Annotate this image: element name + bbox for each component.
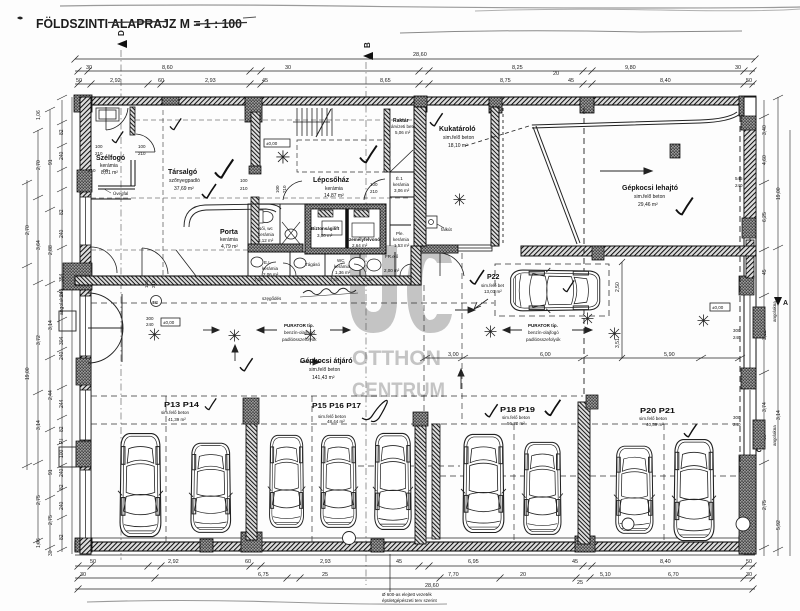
svg-text:sim.felő beton: sim.felő beton bbox=[634, 194, 665, 200]
svg-text:benzín-olajfogó: benzín-olajfogó bbox=[528, 330, 559, 335]
svg-text:2,75: 2,75 bbox=[48, 515, 54, 525]
svg-text:B: B bbox=[363, 42, 372, 48]
svg-text:falkút: falkút bbox=[441, 227, 453, 232]
svg-text:30: 30 bbox=[735, 65, 741, 71]
svg-text:82: 82 bbox=[59, 426, 65, 432]
svg-text:TG: TG bbox=[152, 300, 159, 305]
svg-text:kerámia: kerámia bbox=[258, 232, 275, 237]
svg-text:8,40: 8,40 bbox=[660, 559, 671, 565]
svg-text:±0,00: ±0,00 bbox=[266, 141, 278, 146]
svg-text:angolakna: angolakna bbox=[772, 301, 777, 322]
svg-text:2,92: 2,92 bbox=[168, 559, 179, 565]
svg-text:82: 82 bbox=[59, 484, 65, 490]
svg-text:épületgépészeti terv szerint: épületgépészeti terv szerint bbox=[382, 598, 438, 603]
svg-text:41,39 m²: 41,39 m² bbox=[168, 417, 186, 422]
svg-text:padlóösszefolyók: padlóösszefolyók bbox=[282, 337, 317, 342]
svg-text:1,36 m²: 1,36 m² bbox=[335, 270, 351, 275]
svg-text:240: 240 bbox=[59, 229, 65, 238]
svg-text:angolakna: angolakna bbox=[772, 425, 777, 446]
svg-text:45: 45 bbox=[568, 78, 574, 84]
svg-text:100: 100 bbox=[138, 144, 146, 149]
svg-text:50: 50 bbox=[90, 559, 96, 565]
svg-text:3,51: 3,51 bbox=[615, 338, 621, 348]
svg-text:Biztonságilift: Biztonságilift bbox=[311, 226, 340, 231]
svg-text:A: A bbox=[783, 300, 788, 307]
svg-text:É.1: É.1 bbox=[396, 175, 403, 181]
svg-text:3,72: 3,72 bbox=[36, 335, 42, 345]
svg-text:240: 240 bbox=[59, 151, 65, 160]
svg-text:28,60: 28,60 bbox=[413, 52, 427, 58]
svg-text:padlóösszefolyók: padlóösszefolyók bbox=[526, 337, 561, 342]
svg-text:20: 20 bbox=[553, 71, 559, 77]
svg-text:82: 82 bbox=[59, 534, 65, 540]
svg-text:P.I: P.I bbox=[59, 439, 65, 444]
svg-text:4,79 m²: 4,79 m² bbox=[221, 244, 238, 250]
svg-text:3,00: 3,00 bbox=[448, 352, 459, 358]
svg-text:Női, wc: Női, wc bbox=[258, 226, 274, 231]
svg-text:Kukatároló: Kukatároló bbox=[439, 126, 476, 133]
svg-text:kerámia: kerámia bbox=[393, 182, 410, 187]
svg-text:3,14: 3,14 bbox=[36, 420, 42, 430]
svg-text:141,43 m²: 141,43 m² bbox=[312, 375, 335, 381]
svg-text:1,06: 1,06 bbox=[36, 538, 42, 548]
svg-text:Ø 600-as elejtett vezeték: Ø 600-as elejtett vezeték bbox=[382, 592, 433, 597]
svg-text:91: 91 bbox=[48, 159, 54, 165]
svg-text:37,69 m²: 37,69 m² bbox=[174, 186, 194, 192]
svg-text:30: 30 bbox=[746, 572, 752, 578]
svg-text:100: 100 bbox=[95, 144, 103, 149]
svg-text:210: 210 bbox=[370, 189, 378, 194]
svg-text:Ple.: Ple. bbox=[396, 231, 404, 236]
svg-text:19,00: 19,00 bbox=[25, 367, 31, 380]
svg-text:±0,00: ±0,00 bbox=[712, 305, 724, 310]
svg-text:8,60: 8,60 bbox=[162, 65, 173, 71]
svg-text:20: 20 bbox=[520, 572, 526, 578]
svg-text:kerámia: kerámia bbox=[325, 186, 343, 192]
svg-text:2,75: 2,75 bbox=[762, 500, 768, 510]
svg-text:3,06 m²: 3,06 m² bbox=[394, 188, 410, 193]
svg-text:2,88: 2,88 bbox=[48, 245, 54, 255]
svg-text:82: 82 bbox=[59, 209, 65, 215]
svg-text:40,39 m²: 40,39 m² bbox=[646, 422, 664, 427]
svg-text:3,12 m²: 3,12 m² bbox=[258, 238, 274, 243]
svg-text:5,92: 5,92 bbox=[776, 520, 782, 530]
svg-text:3,00 m²: 3,00 m² bbox=[317, 233, 333, 238]
svg-text:30: 30 bbox=[86, 65, 92, 71]
svg-text:100: 100 bbox=[240, 178, 248, 183]
svg-text:60: 60 bbox=[158, 78, 164, 84]
svg-text:5,10: 5,10 bbox=[600, 572, 611, 578]
svg-text:6,25: 6,25 bbox=[762, 212, 768, 222]
svg-text:Gépkocsi lehajtó: Gépkocsi lehajtó bbox=[622, 185, 678, 192]
svg-text:2,06 m²: 2,06 m² bbox=[263, 272, 279, 277]
svg-text:14,87 m²: 14,87 m² bbox=[324, 193, 344, 199]
svg-text:210: 210 bbox=[240, 186, 248, 191]
svg-text:PURATOR tip.: PURATOR tip. bbox=[528, 323, 558, 328]
svg-text:2,50: 2,50 bbox=[615, 282, 621, 292]
svg-text:91: 91 bbox=[48, 469, 54, 475]
svg-text:P13 P14: P13 P14 bbox=[164, 402, 199, 409]
svg-text:8,01 m²: 8,01 m² bbox=[101, 170, 118, 176]
svg-text:sim.felő bet: sim.felő bet bbox=[481, 283, 505, 288]
svg-text:P20 P21: P20 P21 bbox=[640, 408, 675, 415]
svg-text:szęgődés: szęgődés bbox=[262, 296, 282, 301]
svg-text:WC: WC bbox=[337, 258, 345, 263]
svg-text:kerámia: kerámia bbox=[100, 163, 118, 169]
svg-text:2,10: 2,10 bbox=[254, 277, 263, 282]
svg-text:sim.felő beton: sim.felő beton bbox=[443, 135, 474, 141]
svg-text:3,14: 3,14 bbox=[48, 320, 54, 330]
svg-text:D: D bbox=[117, 30, 126, 36]
svg-text:56,70 m²: 56,70 m² bbox=[507, 421, 525, 426]
svg-text:240: 240 bbox=[59, 468, 65, 477]
svg-text:50: 50 bbox=[746, 559, 752, 565]
svg-text:8,25: 8,25 bbox=[512, 65, 523, 71]
svg-text:45: 45 bbox=[762, 269, 768, 275]
svg-text:sim.felő beton: sim.felő beton bbox=[161, 410, 190, 415]
svg-text:6,00: 6,00 bbox=[540, 352, 551, 358]
svg-text:545: 545 bbox=[735, 176, 743, 181]
svg-text:P15 P16 P17: P15 P16 P17 bbox=[312, 403, 361, 410]
svg-text:82: 82 bbox=[59, 129, 65, 135]
svg-text:2,44: 2,44 bbox=[48, 390, 54, 400]
svg-text:1,53 m²: 1,53 m² bbox=[394, 243, 410, 248]
svg-text:7,70: 7,70 bbox=[448, 572, 459, 578]
svg-text:kerámia: kerámia bbox=[393, 237, 410, 242]
svg-text:8,40: 8,40 bbox=[660, 78, 671, 84]
svg-text:30: 30 bbox=[80, 572, 86, 578]
svg-text:240: 240 bbox=[146, 322, 154, 327]
svg-text:3,74: 3,74 bbox=[762, 402, 768, 412]
svg-text:100: 100 bbox=[275, 185, 280, 193]
svg-text:304: 304 bbox=[59, 336, 65, 345]
svg-text:2,10: 2,10 bbox=[296, 277, 305, 282]
svg-text:angolakna: angolakna bbox=[59, 292, 65, 315]
svg-text:48,44 m²: 48,44 m² bbox=[327, 419, 345, 424]
svg-text:FR.elő: FR.elő bbox=[385, 254, 399, 259]
svg-text:OTTHON: OTTHON bbox=[352, 347, 441, 370]
svg-text:Szélfogó: Szélfogó bbox=[96, 155, 125, 162]
svg-text:sim.felő beton: sim.felő beton bbox=[502, 415, 531, 420]
svg-text:2,92: 2,92 bbox=[110, 78, 121, 84]
svg-text:30: 30 bbox=[285, 65, 291, 71]
svg-text:210: 210 bbox=[88, 168, 96, 173]
svg-text:30: 30 bbox=[48, 550, 54, 556]
svg-text:2,10: 2,10 bbox=[363, 277, 372, 282]
svg-text:240: 240 bbox=[735, 183, 743, 188]
svg-text:240: 240 bbox=[59, 351, 65, 360]
svg-text:8,75: 8,75 bbox=[500, 78, 511, 84]
svg-text:2,75: 2,75 bbox=[36, 495, 42, 505]
svg-text:240: 240 bbox=[59, 501, 65, 510]
svg-text:Gépkocsi átjáró: Gépkocsi átjáró bbox=[300, 358, 353, 365]
svg-text:50: 50 bbox=[746, 78, 752, 84]
svg-text:3,14: 3,14 bbox=[776, 410, 782, 420]
svg-text:Üvegfal: Üvegfal bbox=[113, 190, 128, 196]
svg-text:5,90: 5,90 bbox=[664, 352, 675, 358]
svg-text:6,70: 6,70 bbox=[668, 572, 679, 578]
svg-text:3,40: 3,40 bbox=[762, 125, 768, 135]
svg-text:25: 25 bbox=[577, 580, 583, 586]
svg-text:sim.felő beton: sim.felő beton bbox=[309, 367, 340, 373]
svg-text:210: 210 bbox=[151, 280, 156, 288]
svg-text:2,70: 2,70 bbox=[36, 160, 42, 170]
svg-text:28,60: 28,60 bbox=[425, 583, 439, 589]
svg-text:P22: P22 bbox=[487, 274, 500, 281]
svg-text:1,06: 1,06 bbox=[36, 110, 42, 120]
svg-text:300: 300 bbox=[146, 316, 154, 321]
svg-text:szőnyegpadló: szőnyegpadló bbox=[169, 178, 200, 184]
svg-text:60: 60 bbox=[245, 559, 251, 565]
svg-text:9,80: 9,80 bbox=[625, 65, 636, 71]
svg-text:13,01 m²: 13,01 m² bbox=[484, 289, 502, 294]
svg-text:19,00: 19,00 bbox=[776, 187, 782, 200]
svg-text:2,64 m²: 2,64 m² bbox=[352, 243, 368, 248]
svg-text:5,06 m²: 5,06 m² bbox=[395, 130, 411, 135]
svg-text:kerámia: kerámia bbox=[220, 237, 238, 243]
svg-text:100: 100 bbox=[144, 280, 149, 288]
svg-text:4,60: 4,60 bbox=[762, 155, 768, 165]
svg-text:210: 210 bbox=[282, 185, 287, 193]
svg-text:2,00 m²: 2,00 m² bbox=[384, 268, 400, 273]
svg-text:29,46 m²: 29,46 m² bbox=[638, 202, 658, 208]
svg-text:50: 50 bbox=[76, 78, 82, 84]
svg-text:2,93: 2,93 bbox=[320, 559, 331, 565]
svg-text:PURATOR tip.: PURATOR tip. bbox=[284, 323, 314, 328]
svg-text:8,65: 8,65 bbox=[380, 78, 391, 84]
svg-text:2,93: 2,93 bbox=[205, 78, 216, 84]
svg-text:Személyfelvonó: Személyfelvonó bbox=[346, 237, 380, 242]
svg-text:6,75: 6,75 bbox=[258, 572, 269, 578]
svg-text:100: 100 bbox=[59, 449, 65, 458]
svg-text:45: 45 bbox=[396, 559, 402, 565]
svg-text:±0,00: ±0,00 bbox=[163, 320, 175, 325]
svg-text:sim.felő beton: sim.felő beton bbox=[639, 416, 668, 421]
svg-text:P18 P19: P18 P19 bbox=[500, 407, 535, 414]
svg-text:Lépcsőház: Lépcsőház bbox=[313, 177, 350, 184]
svg-text:45: 45 bbox=[262, 78, 268, 84]
svg-text:25: 25 bbox=[322, 572, 328, 578]
svg-text:2,10: 2,10 bbox=[330, 277, 339, 282]
svg-text:45: 45 bbox=[572, 559, 578, 565]
svg-text:244: 244 bbox=[59, 399, 65, 408]
svg-text:Társalgó: Társalgó bbox=[168, 169, 197, 176]
svg-text:Tágásó: Tágásó bbox=[305, 262, 321, 267]
svg-text:3,64: 3,64 bbox=[36, 240, 42, 250]
svg-text:6,95: 6,95 bbox=[468, 559, 479, 565]
svg-text:E.I.: E.I. bbox=[264, 260, 271, 265]
svg-text:Porta: Porta bbox=[220, 229, 238, 236]
svg-text:2,70: 2,70 bbox=[25, 225, 31, 235]
